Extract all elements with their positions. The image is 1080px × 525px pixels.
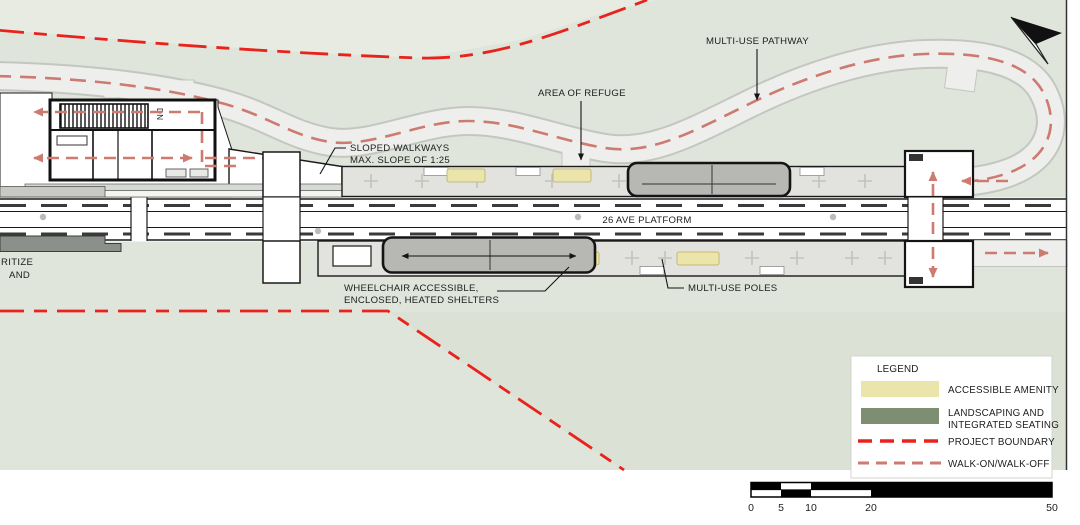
svg-text:ACCESSIBLE AMENITY: ACCESSIBLE AMENITY [948,385,1059,396]
crossing-mid [263,152,300,283]
platform-box [800,168,824,176]
legend: LEGEND ACCESSIBLE AMENITY LANDSCAPING AN… [851,356,1059,478]
area-of-refuge-label: AREA OF REFUGE [538,88,626,99]
legend-swatch-landscaping [861,408,939,424]
accessible-amenity-north-2 [553,169,591,182]
platform-label: 26 AVE PLATFORM [602,215,691,226]
platform-box [640,267,664,275]
stair-dn-label: DN [155,108,164,121]
scale-tick-50: 50 [1046,502,1058,514]
accessible-amenity-north-1 [447,169,485,182]
site-plan-drawing: DN 26 AVE PLATFORM [0,0,1080,525]
svg-text:PROJECT BOUNDARY: PROJECT BOUNDARY [948,437,1055,448]
fixture [190,169,208,177]
platform-north [342,163,905,197]
crossing-left [131,198,147,242]
scale-tick-5: 5 [778,502,784,514]
svg-text:INTEGRATED SEATING: INTEGRATED SEATING [948,420,1059,431]
shelter-north [628,163,790,196]
multi-use-poles-label: MULTI-USE POLES [688,283,777,294]
sloped-walkways-label-1: SLOPED WALKWAYS [350,143,449,154]
scale-tick-20: 20 [865,502,877,514]
fixture [57,136,87,145]
fixture [166,169,186,177]
platform-box [760,267,784,275]
stair-mark [909,277,923,284]
platform-box [424,168,448,176]
sloped-walkways-label-2: MAX. SLOPE OF 1:25 [350,155,450,166]
rail-corridor: 26 AVE PLATFORM [0,198,1066,242]
landscaping-seating-bar [0,236,121,252]
svg-text:WALK-ON/WALK-OFF: WALK-ON/WALK-OFF [948,459,1050,470]
cutoff-text-2: AND [9,270,30,281]
site-plan-sheet: DN 26 AVE PLATFORM [0,0,1080,525]
shelter-south [383,238,595,273]
stair-mark [909,154,923,161]
accessible-amenity-south-2 [677,252,719,265]
legend-swatch-accessible-amenity [861,381,939,397]
stairs-hatch [60,104,148,128]
platform-box [516,168,540,176]
multi-use-pathway-label: MULTI-USE PATHWAY [706,36,809,47]
legend-title: LEGEND [877,364,919,375]
planting-strip [0,187,105,198]
scale-tick-0: 0 [748,502,754,514]
wheelchair-shelters-label-2: ENCLOSED, HEATED SHELTERS [344,295,499,306]
scale-tick-10: 10 [805,502,817,514]
bench-box [333,246,371,266]
platform-south [318,238,908,277]
wheelchair-shelters-label-1: WHEELCHAIR ACCESSIBLE, [344,283,479,294]
svg-text:LANDSCAPING AND: LANDSCAPING AND [948,408,1044,419]
cutoff-text-1: RITIZE [1,257,33,268]
